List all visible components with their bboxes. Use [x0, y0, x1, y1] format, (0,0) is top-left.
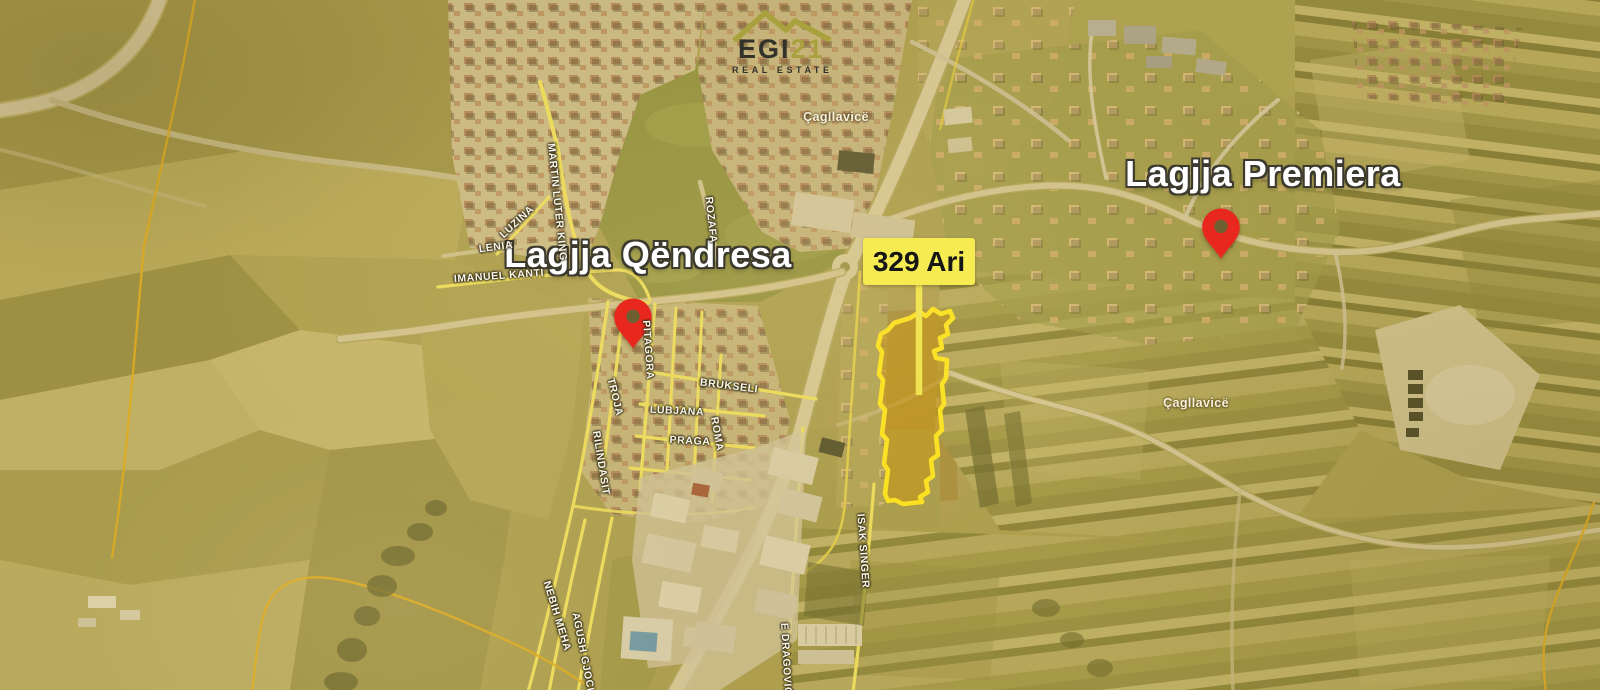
satellite-map: [0, 0, 1600, 690]
parcel-area-label: 329 Ari: [863, 238, 975, 285]
brand-name: EGI21: [738, 34, 825, 65]
brand-tagline: REAL ESTATE: [732, 65, 833, 75]
street-label-praga: PRAGA: [669, 434, 710, 448]
area-label-premiera: Lagjja Premiera: [1125, 153, 1401, 195]
listing-map-image: EGI21 REAL ESTATE Lagjja Qëndresa Lagjja…: [0, 0, 1600, 690]
brand-name-main: EGI: [738, 34, 791, 64]
place-label-cagllavice-east: Çagllavicë: [1163, 396, 1229, 410]
brand-name-number: 21: [791, 34, 825, 64]
place-label-cagllavice-north: Çagllavicë: [803, 110, 869, 124]
area-label-qendresa: Lagjja Qëndresa: [504, 234, 792, 276]
brand-logo: EGI21 REAL ESTATE: [712, 8, 872, 80]
location-pin-icon: [1201, 207, 1241, 265]
